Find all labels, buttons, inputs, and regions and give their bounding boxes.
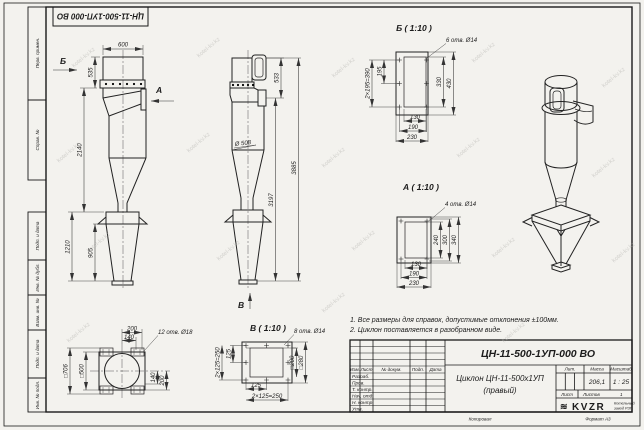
doc-name2: (правый) <box>483 386 516 395</box>
view-arrow-label-b: Б <box>60 56 66 66</box>
top-stamp: ЦН-11-500-1УП-000 ВО <box>56 12 144 21</box>
company-name2: завод РЗП <box>613 407 633 411</box>
margin-label: Взам. инв. № <box>35 298 40 326</box>
margin-label: Подп. и дата <box>35 221 40 250</box>
margin-label: Перв. примен. <box>35 38 40 69</box>
dim: 2140 <box>78 143 84 158</box>
front-view: 600 535 2140 1210 905 Б А <box>53 43 174 291</box>
dim: 300 <box>443 234 449 245</box>
dim: 200 <box>160 375 166 387</box>
tb-row-label: Разраб. <box>352 374 369 380</box>
tb-lit-label: Лит. <box>564 367 576 372</box>
dim: 195 <box>378 66 384 77</box>
tb-scale-value: 1 : 25 <box>613 379 630 386</box>
margin-label: Инв. № дубл. <box>35 263 40 291</box>
dim: 2×125=250 <box>251 394 283 400</box>
dim: 230 <box>408 281 420 287</box>
dim: 125 <box>251 383 262 389</box>
tb-header: Изм. <box>350 367 360 372</box>
tb-mass-value: 206,1 <box>588 379 606 386</box>
dim: □500 <box>80 364 86 378</box>
dim: 140 <box>124 335 135 341</box>
side-view: Ø 508 533 3197 3885 В <box>225 50 301 310</box>
dim: 533 <box>275 72 281 83</box>
tb-row-label: Пров. <box>352 381 365 387</box>
title-block: Изм. Лист № докум. Подп. Дата Разраб. Пр… <box>350 340 636 422</box>
dim: 125 <box>227 348 233 359</box>
logo-mark-icon: ≋ <box>560 402 568 412</box>
tb-header: № докум. <box>381 367 401 372</box>
note-line: 1. Все размеры для справок, допустимые о… <box>350 316 632 326</box>
dim: 1210 <box>66 240 72 254</box>
margin-label: Справ. № <box>35 130 40 151</box>
dim: 190 <box>409 272 420 278</box>
dim: 330 <box>437 76 443 87</box>
tb-sheet-label: Лист <box>560 392 573 397</box>
holes-callout: 12 отв. Ø18 <box>158 330 193 336</box>
view-title: Б ( 1:10 ) <box>396 23 432 33</box>
dim: 535 <box>89 67 95 78</box>
view-title: В ( 1:10 ) <box>250 323 286 333</box>
drawing-canvas: Перв. примен. Справ. № Подп. и дата Инв.… <box>0 0 644 430</box>
company-name: Котельный <box>614 402 636 406</box>
holes-callout: 8 отв. Ø14 <box>294 329 326 335</box>
margin-label: Инв. № подл. <box>35 381 40 410</box>
logo-text: KVZR <box>572 402 605 413</box>
dim: 130 <box>411 262 422 268</box>
doc-number: ЦН-11-500-1УП-000 ВО <box>481 348 595 360</box>
tb-sheets-label: Листов <box>582 392 600 397</box>
dim: 600 <box>118 43 129 49</box>
tb-sheets-value: 1 <box>620 392 623 397</box>
dim: 230 <box>406 135 418 141</box>
dim: 2×125=250 <box>216 347 222 379</box>
isometric-view <box>523 76 599 273</box>
doc-name: Циклон ЦН-11-500х1УП <box>456 374 544 383</box>
margin-label: Подп. и дата <box>35 339 40 368</box>
section-view-v: В ( 1:10 ) 8 отв. Ø14 125 2×125=250 □200… <box>216 323 326 401</box>
dim: 200 <box>126 327 138 333</box>
dim: 430 <box>447 78 453 89</box>
top-view: 200 140 12 отв. Ø18 140 200 □706 □500 <box>64 327 194 399</box>
dim: □706 <box>64 364 70 378</box>
view-arrow-label-v: В <box>238 300 244 310</box>
tb-scale-label: Масштаб <box>610 367 632 372</box>
dim: 905 <box>89 247 95 258</box>
footer-format: Формат А3 <box>585 417 611 422</box>
dim: 240 <box>434 234 440 246</box>
dim: 2×195=390 <box>366 68 372 100</box>
note-line: 2. Циклон поставляется в разобранном вид… <box>350 326 632 336</box>
holes-callout: 4 отв. Ø14 <box>445 202 477 208</box>
section-view-b: Б ( 1:10 ) 6 отв. Ø14 195 2×195=390 330 … <box>366 23 478 142</box>
drawing-sheet: Перв. примен. Справ. № Подп. и дата Инв.… <box>0 0 644 430</box>
tb-header: Дата <box>428 367 442 372</box>
dim: 3197 <box>269 193 275 207</box>
dim: 130 <box>410 115 421 121</box>
view-arrow-label-a: А <box>155 85 162 95</box>
tb-header: Подп. <box>412 367 424 372</box>
section-view-a: А ( 1:10 ) 4 отв. Ø14 240 300 340 130 19… <box>397 182 477 288</box>
tb-row-label: Утв. <box>352 407 363 413</box>
tb-header: Лист <box>360 367 373 372</box>
tb-row-label: Н. контр. <box>352 400 374 406</box>
notes: 1. Все размеры для справок, допустимые о… <box>350 316 632 336</box>
holes-callout: 6 отв. Ø14 <box>446 38 478 44</box>
footer-copy: Копировал <box>469 417 492 422</box>
tb-mass-label: Масса <box>590 367 604 372</box>
dim: □280 <box>299 355 305 369</box>
dim: 340 <box>452 234 458 245</box>
tb-row-label: Т. контр. <box>352 387 373 393</box>
view-title: А ( 1:10 ) <box>402 182 439 192</box>
dim: 140 <box>151 372 157 383</box>
dim: 190 <box>408 125 419 131</box>
dim: □200 <box>290 355 296 369</box>
tb-row-label: Нач. отд. <box>352 394 374 400</box>
dim: 3885 <box>292 161 298 175</box>
